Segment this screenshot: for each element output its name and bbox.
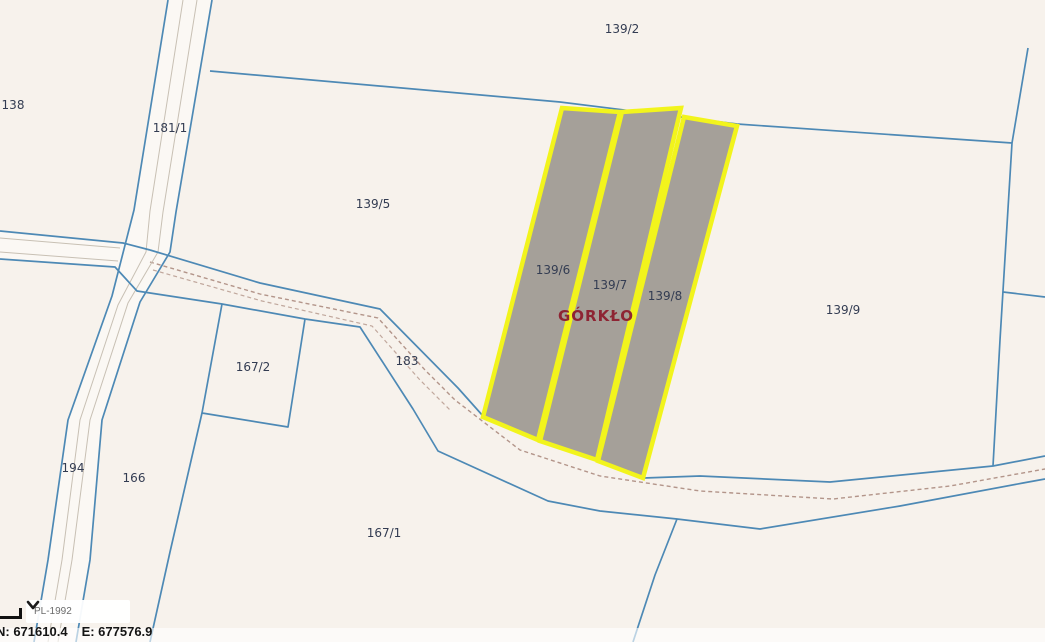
parcel-label-139-9: 139/9: [826, 303, 861, 317]
crs-selector-dropdown[interactable]: PL-1992: [26, 600, 130, 623]
parcel-label-183: 183: [396, 354, 419, 368]
coordinate-north: N: 671610.4: [0, 624, 68, 639]
chevron-down-icon: [26, 600, 40, 610]
parcel-label-194: 194: [62, 461, 85, 475]
parcel-label-139-6: 139/6: [536, 263, 571, 277]
coordinate-east: E: 677576.9: [82, 624, 153, 639]
coordinate-readout: N: 671610.4E: 677576.9: [0, 624, 166, 639]
place-label-gorklo: GÓRKŁO: [558, 306, 634, 325]
parcel-label-167-2: 167/2: [236, 360, 271, 374]
parcel-label-181-1: 181/1: [153, 121, 188, 135]
parcel-label-139-2: 139/2: [605, 22, 640, 36]
parcel-label-139-7: 139/7: [593, 278, 628, 292]
parcel-label-139-8: 139/8: [648, 289, 683, 303]
map-viewport[interactable]: 138 181/1 139/2 139/5 139/6 139/7 139/8 …: [0, 0, 1045, 642]
parcel-label-139-5: 139/5: [356, 197, 391, 211]
parcel-label-167-1: 167/1: [367, 526, 402, 540]
parcel-label-138: 138: [2, 98, 25, 112]
scale-bar: [0, 608, 24, 620]
parcel-label-166: 166: [123, 471, 146, 485]
map-canvas: 138 181/1 139/2 139/5 139/6 139/7 139/8 …: [0, 0, 1045, 642]
